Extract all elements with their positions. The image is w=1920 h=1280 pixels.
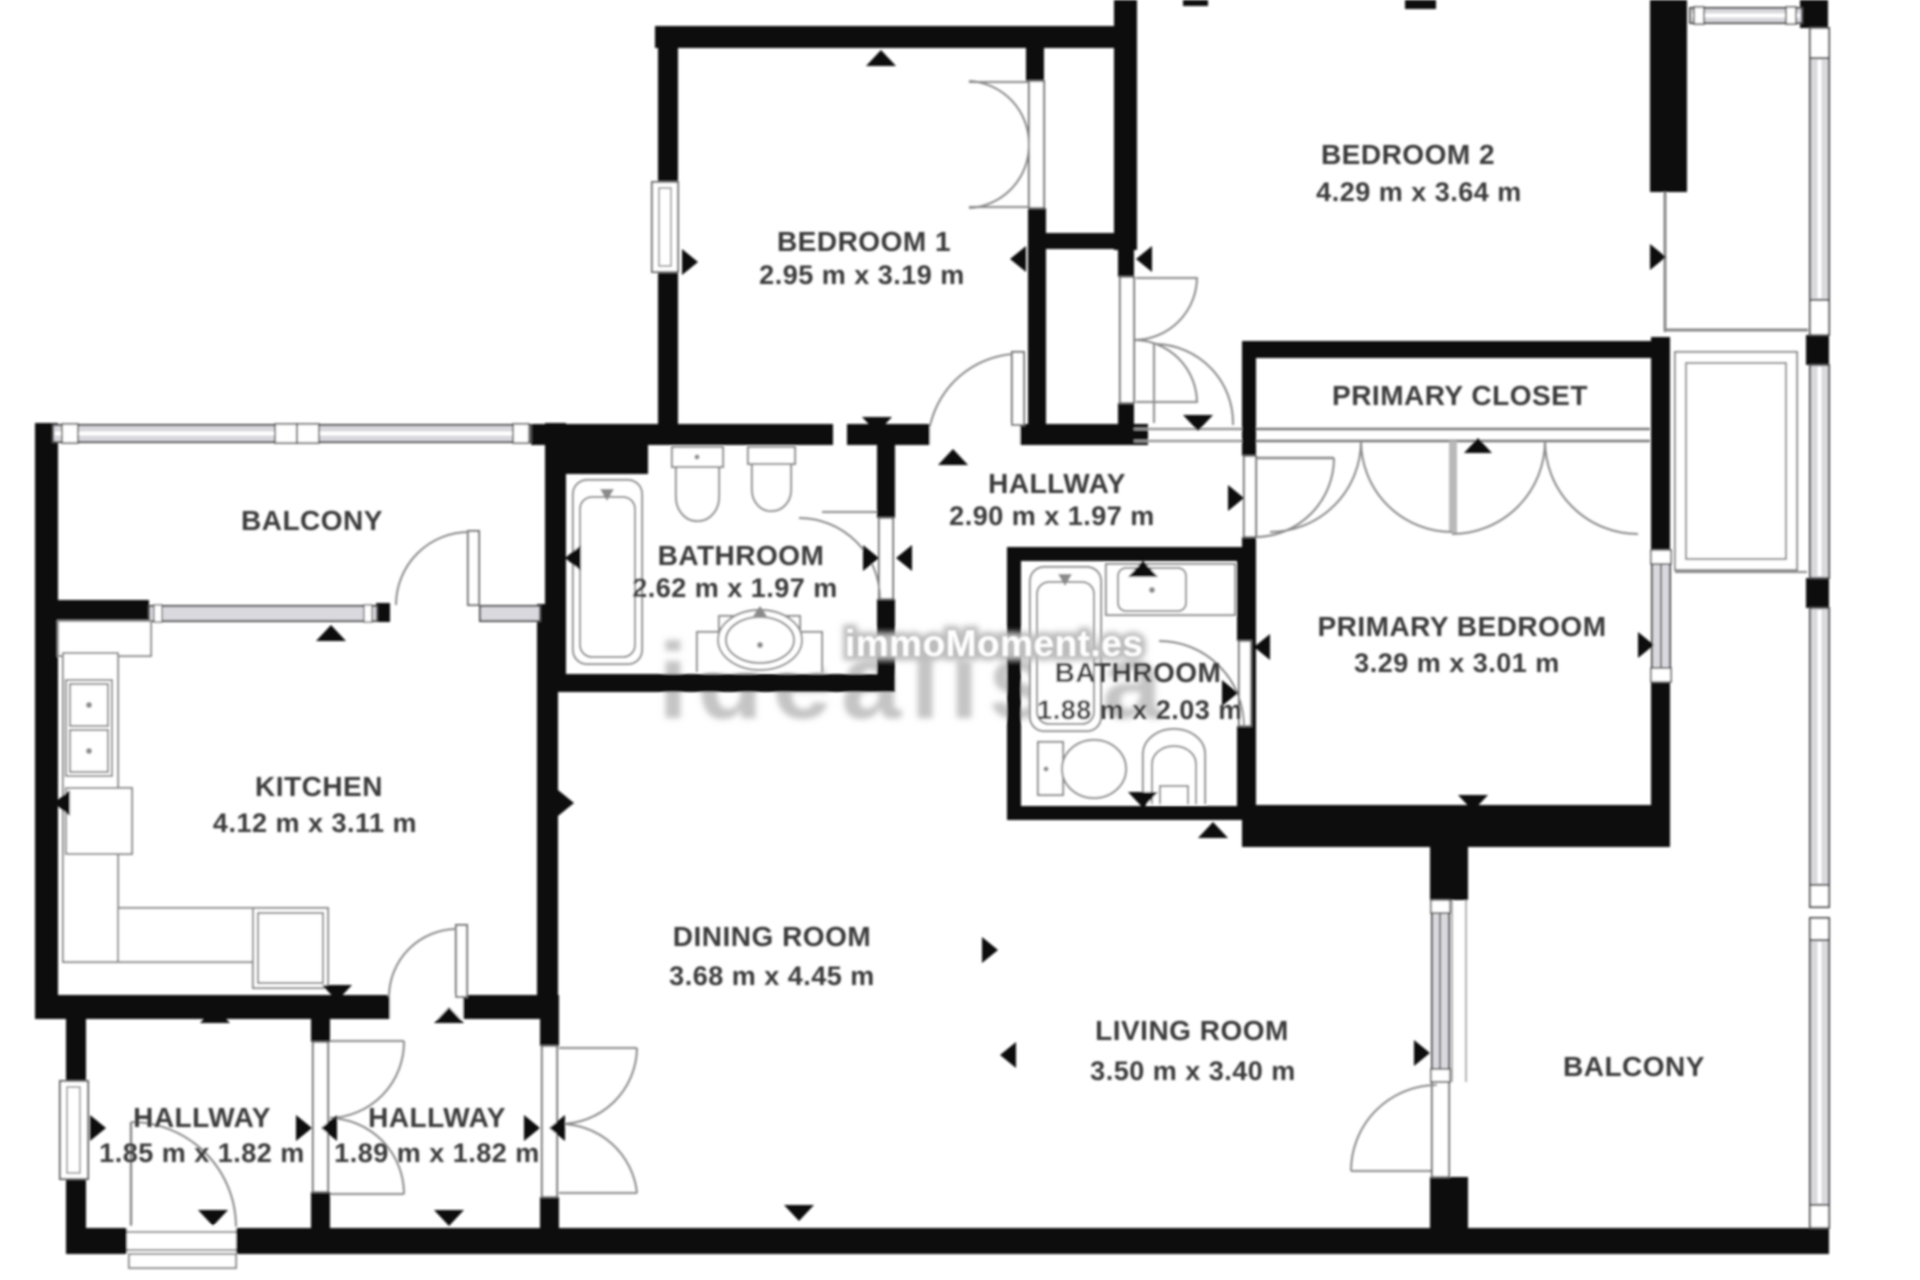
svg-text:3.68 m x 4.45 m: 3.68 m x 4.45 m: [669, 961, 875, 991]
svg-text:HALLWAY: HALLWAY: [988, 468, 1126, 499]
svg-text:KITCHEN: KITCHEN: [255, 771, 383, 802]
svg-text:BALCONY: BALCONY: [241, 505, 383, 536]
svg-text:LIVING ROOM: LIVING ROOM: [1095, 1015, 1289, 1046]
svg-text:HALLWAY: HALLWAY: [133, 1102, 271, 1133]
svg-text:3.50 m x 3.40 m: 3.50 m x 3.40 m: [1090, 1056, 1296, 1086]
svg-text:PRIMARY BEDROOM: PRIMARY BEDROOM: [1317, 611, 1606, 642]
svg-text:BEDROOM 1: BEDROOM 1: [777, 226, 951, 257]
svg-text:2.62 m x 1.97 m: 2.62 m x 1.97 m: [632, 573, 838, 603]
svg-text:PRIMARY CLOSET: PRIMARY CLOSET: [1332, 380, 1588, 411]
svg-text:1.89 m x 1.82 m: 1.89 m x 1.82 m: [334, 1138, 540, 1168]
svg-text:1.85 m x 1.82 m: 1.85 m x 1.82 m: [99, 1138, 305, 1168]
svg-text:4.29 m x 3.64 m: 4.29 m x 3.64 m: [1316, 177, 1522, 207]
svg-text:HALLWAY: HALLWAY: [368, 1102, 506, 1133]
svg-text:BEDROOM 2: BEDROOM 2: [1321, 139, 1495, 170]
svg-text:DINING ROOM: DINING ROOM: [673, 921, 871, 952]
svg-text:BATHROOM: BATHROOM: [1055, 657, 1222, 688]
svg-text:2.90 m x 1.97 m: 2.90 m x 1.97 m: [949, 501, 1155, 531]
svg-text:2.95 m x 3.19 m: 2.95 m x 3.19 m: [759, 260, 965, 290]
svg-text:BATHROOM: BATHROOM: [658, 540, 825, 571]
svg-text:3.29 m x 3.01 m: 3.29 m x 3.01 m: [1354, 648, 1560, 678]
svg-text:1.88 m x 2.03 m: 1.88 m x 2.03 m: [1037, 695, 1243, 725]
svg-text:BALCONY: BALCONY: [1563, 1051, 1705, 1082]
svg-text:4.12 m x 3.11 m: 4.12 m x 3.11 m: [213, 808, 417, 838]
